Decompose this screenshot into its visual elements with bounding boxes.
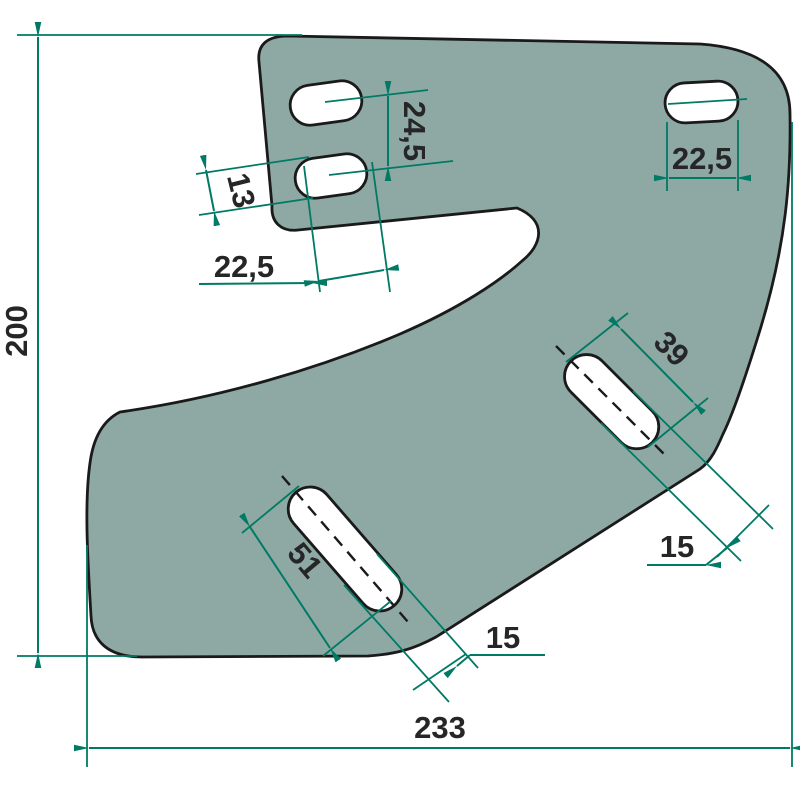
dim-label-overall-width: 233 [414, 710, 466, 745]
dim-label-overall-height: 200 [0, 305, 34, 357]
dim-label-left-slot-length: 22,5 [214, 249, 274, 284]
dim-label-upper-diag-slot-width: 15 [660, 529, 694, 564]
dim-label-left-slot-width: 13 [220, 169, 262, 211]
technical-drawing-canvas: 200 233 24,5 13 22,5 22,5 [0, 0, 800, 800]
dim-label-left-slots-spacing: 24,5 [397, 101, 432, 161]
dim-label-top-right-slot-length: 22,5 [672, 141, 732, 176]
dimension-drawing-svg: 200 233 24,5 13 22,5 22,5 [0, 0, 800, 800]
dim-label-lower-diag-slot-width: 15 [486, 620, 520, 655]
